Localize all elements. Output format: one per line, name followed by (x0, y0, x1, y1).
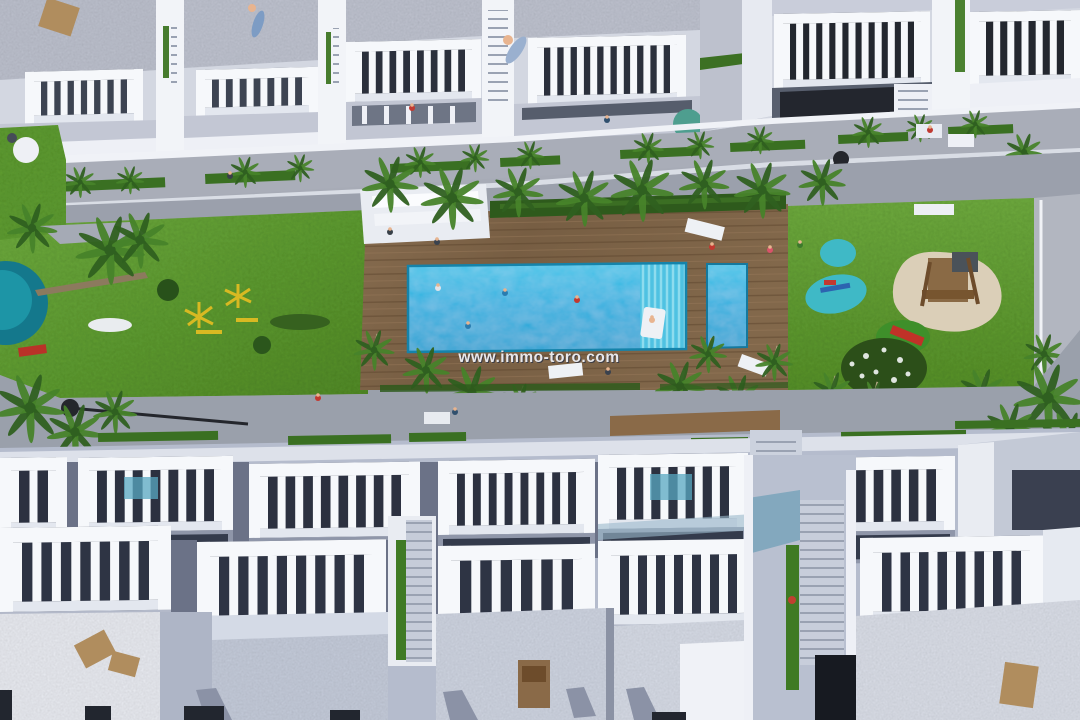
svg-text:www.immo-toro.com: www.immo-toro.com (457, 349, 619, 366)
